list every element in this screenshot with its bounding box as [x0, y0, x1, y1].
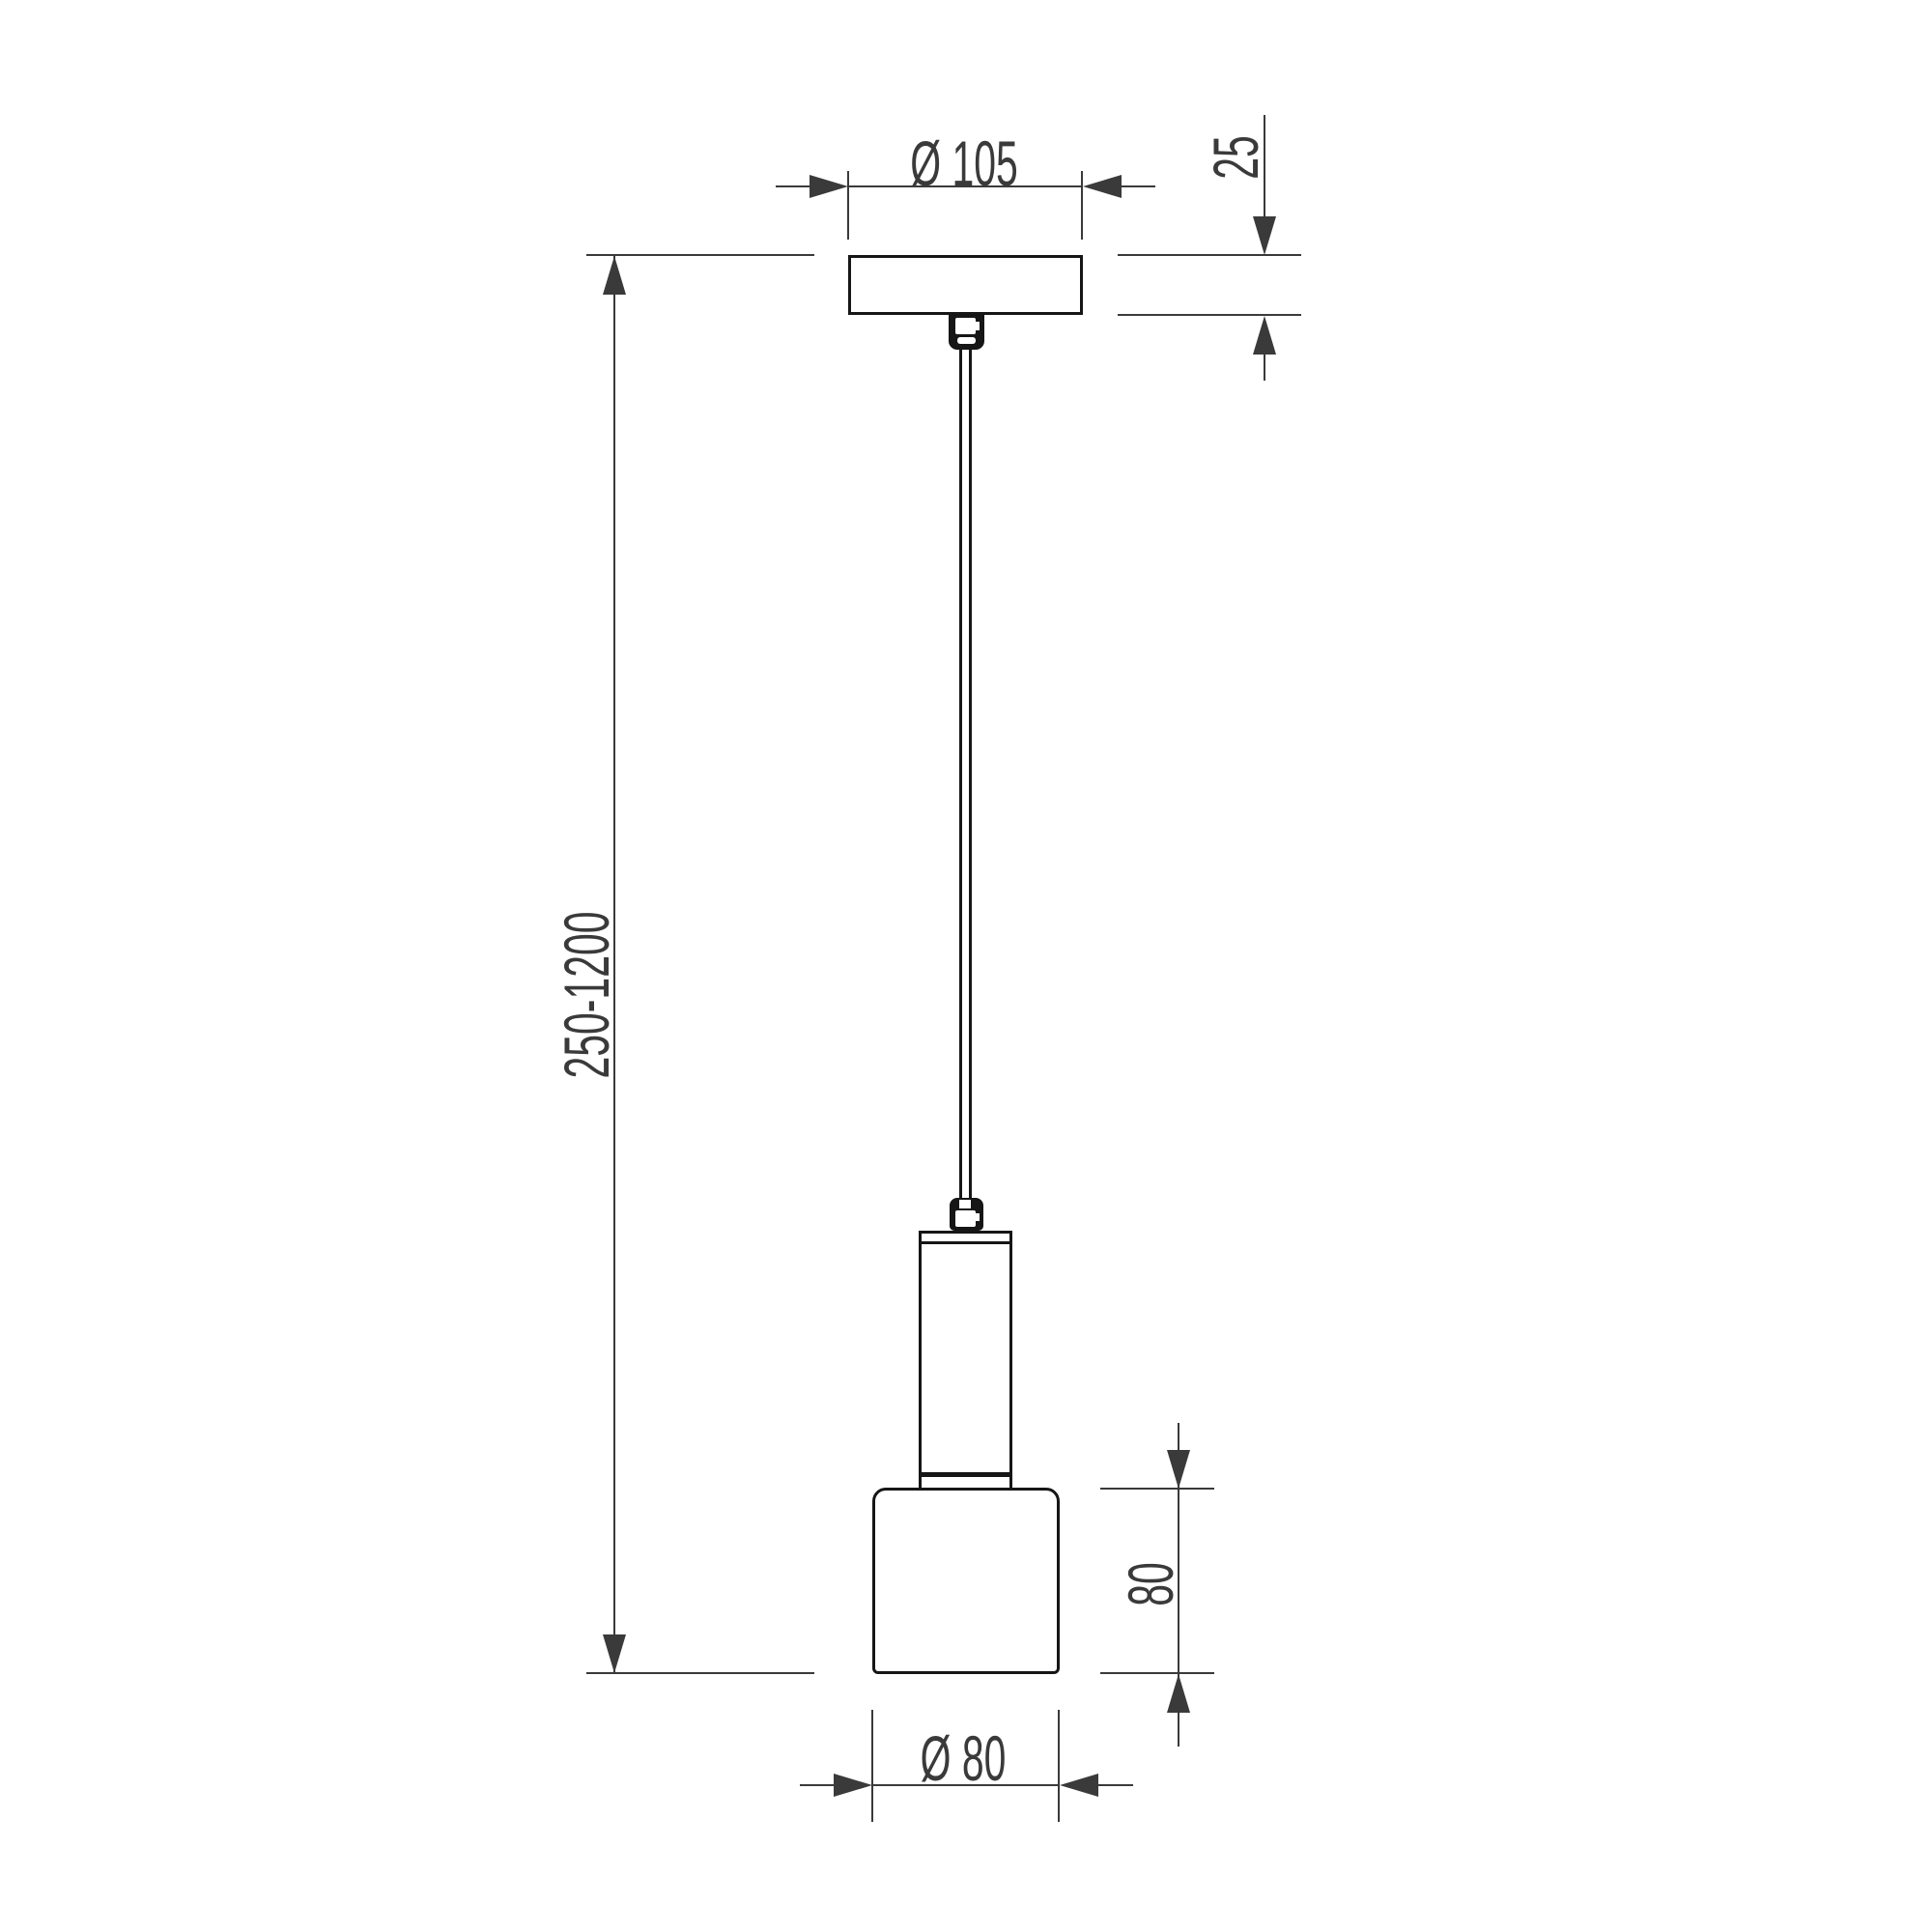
dim-shade-height-ext-bottom [1100, 1672, 1214, 1674]
lamp-stem-collar-line [921, 1241, 1010, 1244]
lamp-stem [919, 1231, 1012, 1488]
dim-shade-diameter-ext-left [871, 1710, 873, 1822]
dim-shade-diameter-tail-left [800, 1784, 835, 1786]
dim-canopy-height-arrow-down [1253, 216, 1276, 255]
dim-shade-height-label: 80 [1114, 1562, 1187, 1606]
gland-canopy-window [955, 318, 976, 334]
dim-suspension-arrow-down [603, 1634, 626, 1673]
drawing-canvas: Ø 105 25 250-1200 80 Ø 80 [0, 0, 1932, 1932]
lamp-stem-rim [919, 1472, 1012, 1477]
dim-canopy-height-arrow-up [1253, 316, 1276, 355]
dim-shade-diameter-tail-right [1098, 1784, 1133, 1786]
gland-canopy-slot [976, 322, 980, 330]
gland-lamp-slot [976, 1213, 980, 1221]
dim-canopy-diameter-arrow-left [810, 175, 848, 198]
dim-canopy-diameter-arrow-right [1083, 175, 1122, 198]
dim-canopy-height-label: 25 [1199, 135, 1272, 180]
dim-shade-diameter-arrow-right [1060, 1774, 1098, 1797]
dim-canopy-diameter-label: Ø 105 [910, 127, 1017, 200]
dim-shade-diameter-arrow-left [834, 1774, 872, 1797]
gland-lamp-notch [959, 1200, 971, 1208]
gland-canopy-bar [957, 337, 976, 344]
suspension-cable [959, 348, 972, 1200]
dim-shade-diameter-ext-right [1058, 1710, 1060, 1822]
dim-shade-height-ext-top [1100, 1488, 1214, 1490]
gland-lamp-window [955, 1210, 976, 1227]
dim-shade-height-arrow-down [1167, 1450, 1190, 1489]
dim-shade-diameter-label: Ø 80 [921, 1721, 1007, 1795]
dim-canopy-diameter-tail-right [1122, 185, 1155, 187]
dim-canopy-height-line-bottom [1264, 355, 1265, 381]
dim-suspension-label: 250-1200 [550, 912, 623, 1079]
dim-shade-height-arrow-up [1167, 1674, 1190, 1713]
dim-suspension-arrow-up [603, 256, 626, 295]
ceiling-canopy [848, 255, 1083, 315]
dim-canopy-diameter-tail-left [776, 185, 810, 187]
lamp-shade [872, 1488, 1060, 1674]
